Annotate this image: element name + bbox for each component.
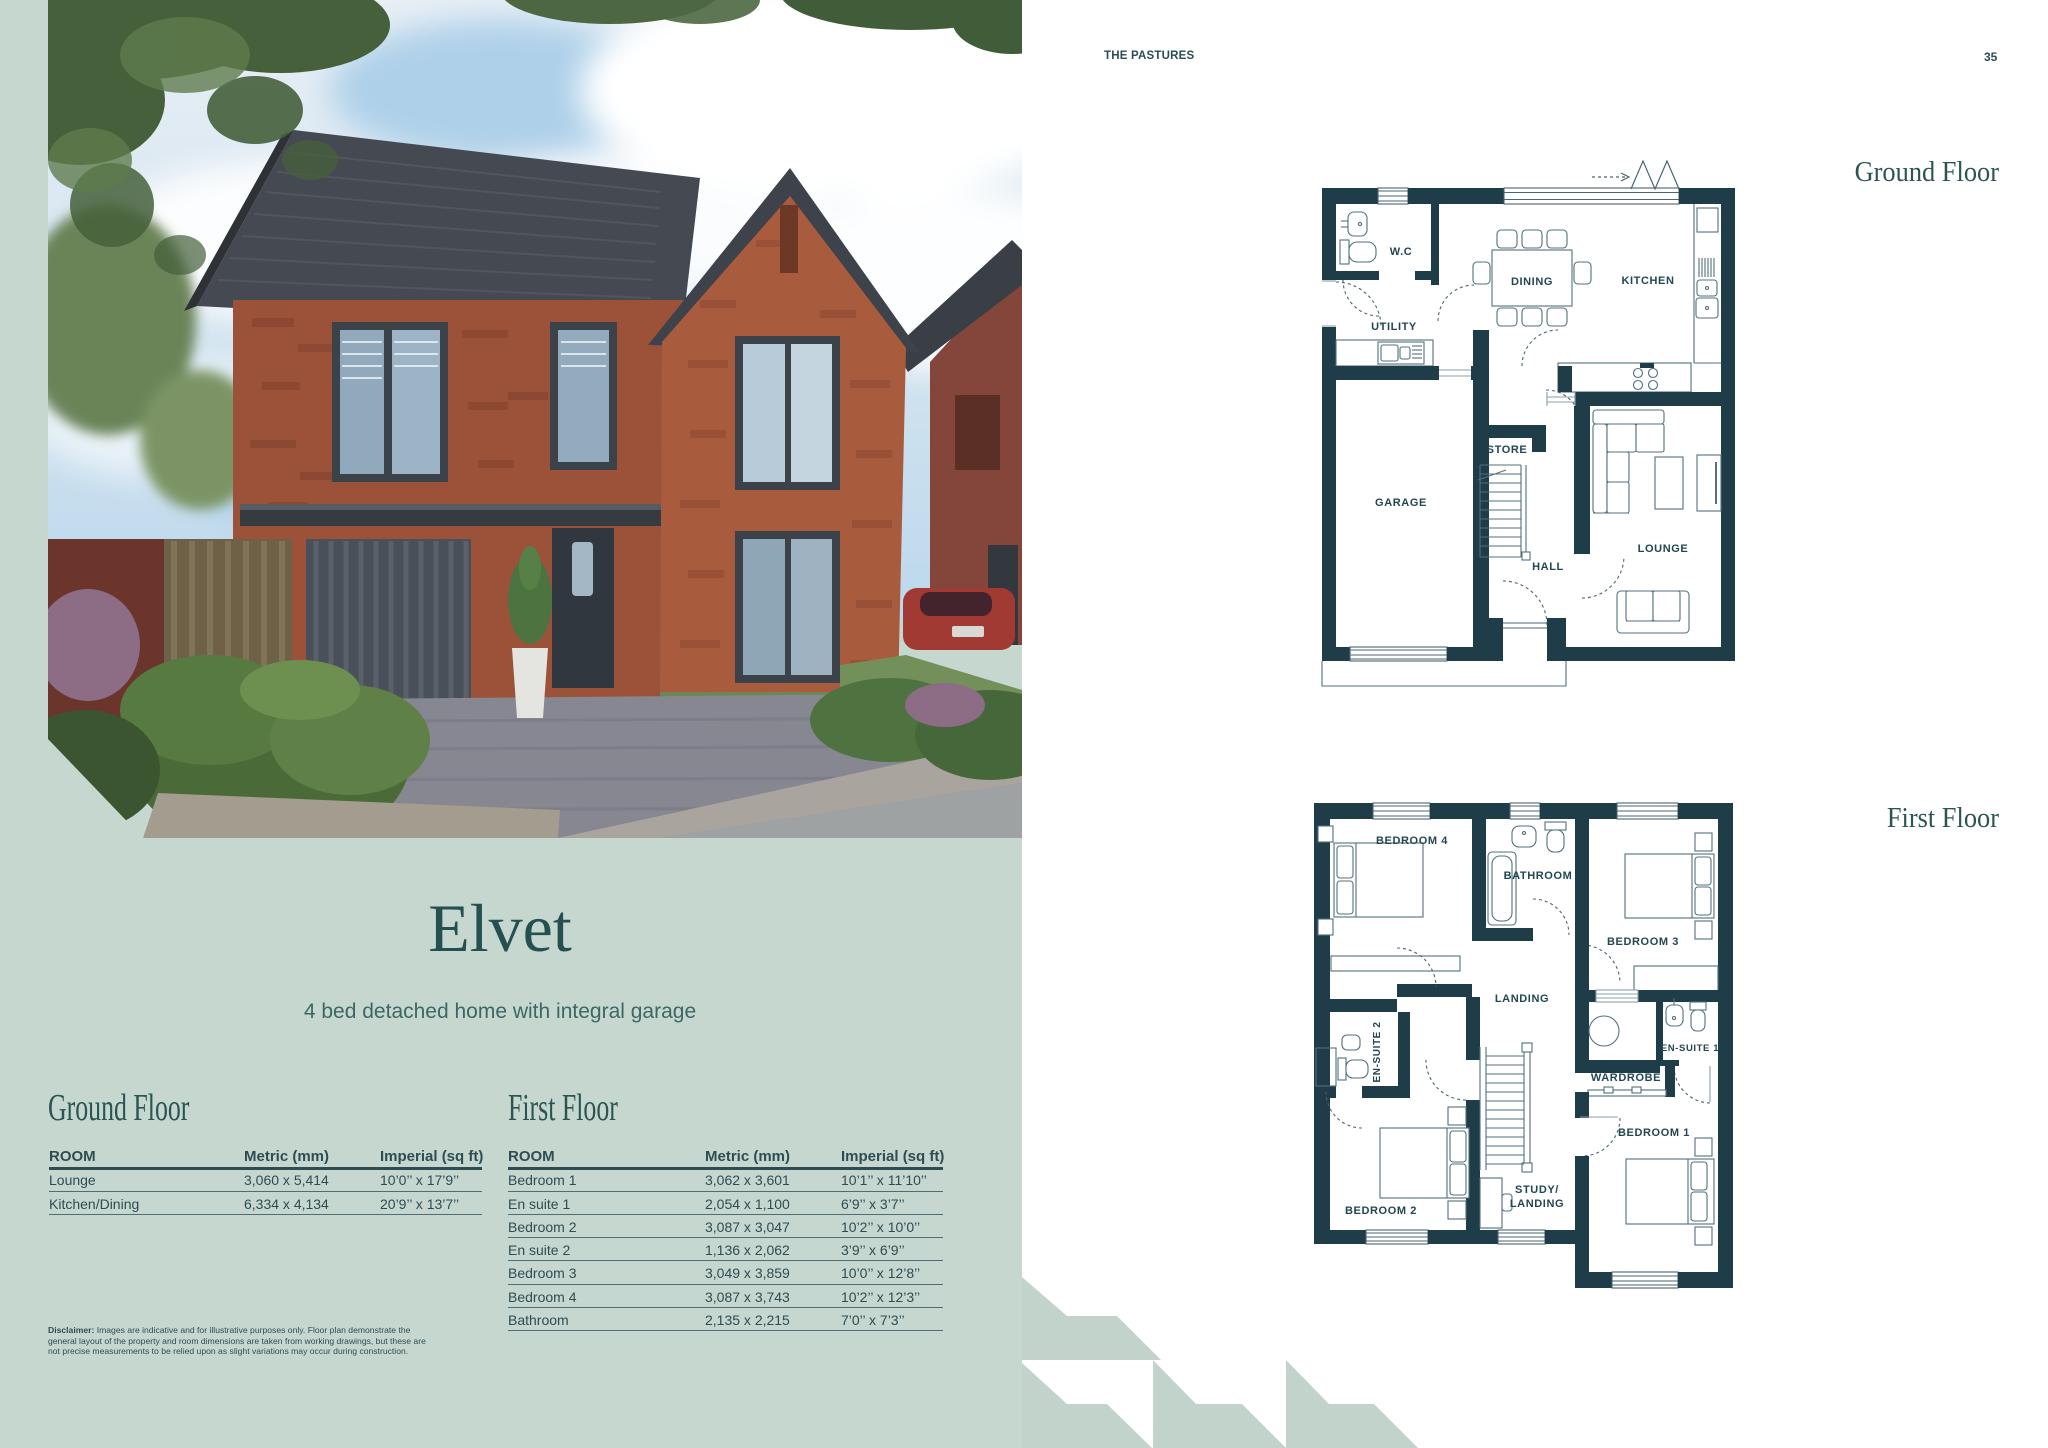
- svg-text:HALL: HALL: [1532, 561, 1564, 573]
- svg-text:WARDROBE: WARDROBE: [1591, 1072, 1661, 1084]
- svg-text:BEDROOM 3: BEDROOM 3: [1607, 936, 1679, 948]
- svg-text:BATHROOM: BATHROOM: [1504, 870, 1573, 882]
- svg-text:LANDING: LANDING: [1495, 993, 1549, 1005]
- svg-text:STUDY/: STUDY/: [1515, 1184, 1559, 1196]
- svg-text:UTILITY: UTILITY: [1371, 321, 1417, 333]
- svg-text:EN-SUITE 2: EN-SUITE 2: [1372, 1021, 1383, 1082]
- svg-text:DINING: DINING: [1511, 276, 1553, 288]
- svg-text:BEDROOM 1: BEDROOM 1: [1618, 1127, 1690, 1139]
- svg-text:BEDROOM 2: BEDROOM 2: [1345, 1205, 1417, 1217]
- svg-text:GARAGE: GARAGE: [1375, 497, 1427, 509]
- svg-text:EN-SUITE 1: EN-SUITE 1: [1661, 1043, 1719, 1054]
- svg-text:STORE: STORE: [1487, 444, 1528, 456]
- svg-text:KITCHEN: KITCHEN: [1621, 275, 1674, 287]
- svg-text:LOUNGE: LOUNGE: [1638, 543, 1689, 555]
- svg-text:LANDING: LANDING: [1510, 1198, 1564, 1210]
- svg-text:BEDROOM 4: BEDROOM 4: [1376, 835, 1448, 847]
- svg-text:W.C: W.C: [1390, 246, 1413, 258]
